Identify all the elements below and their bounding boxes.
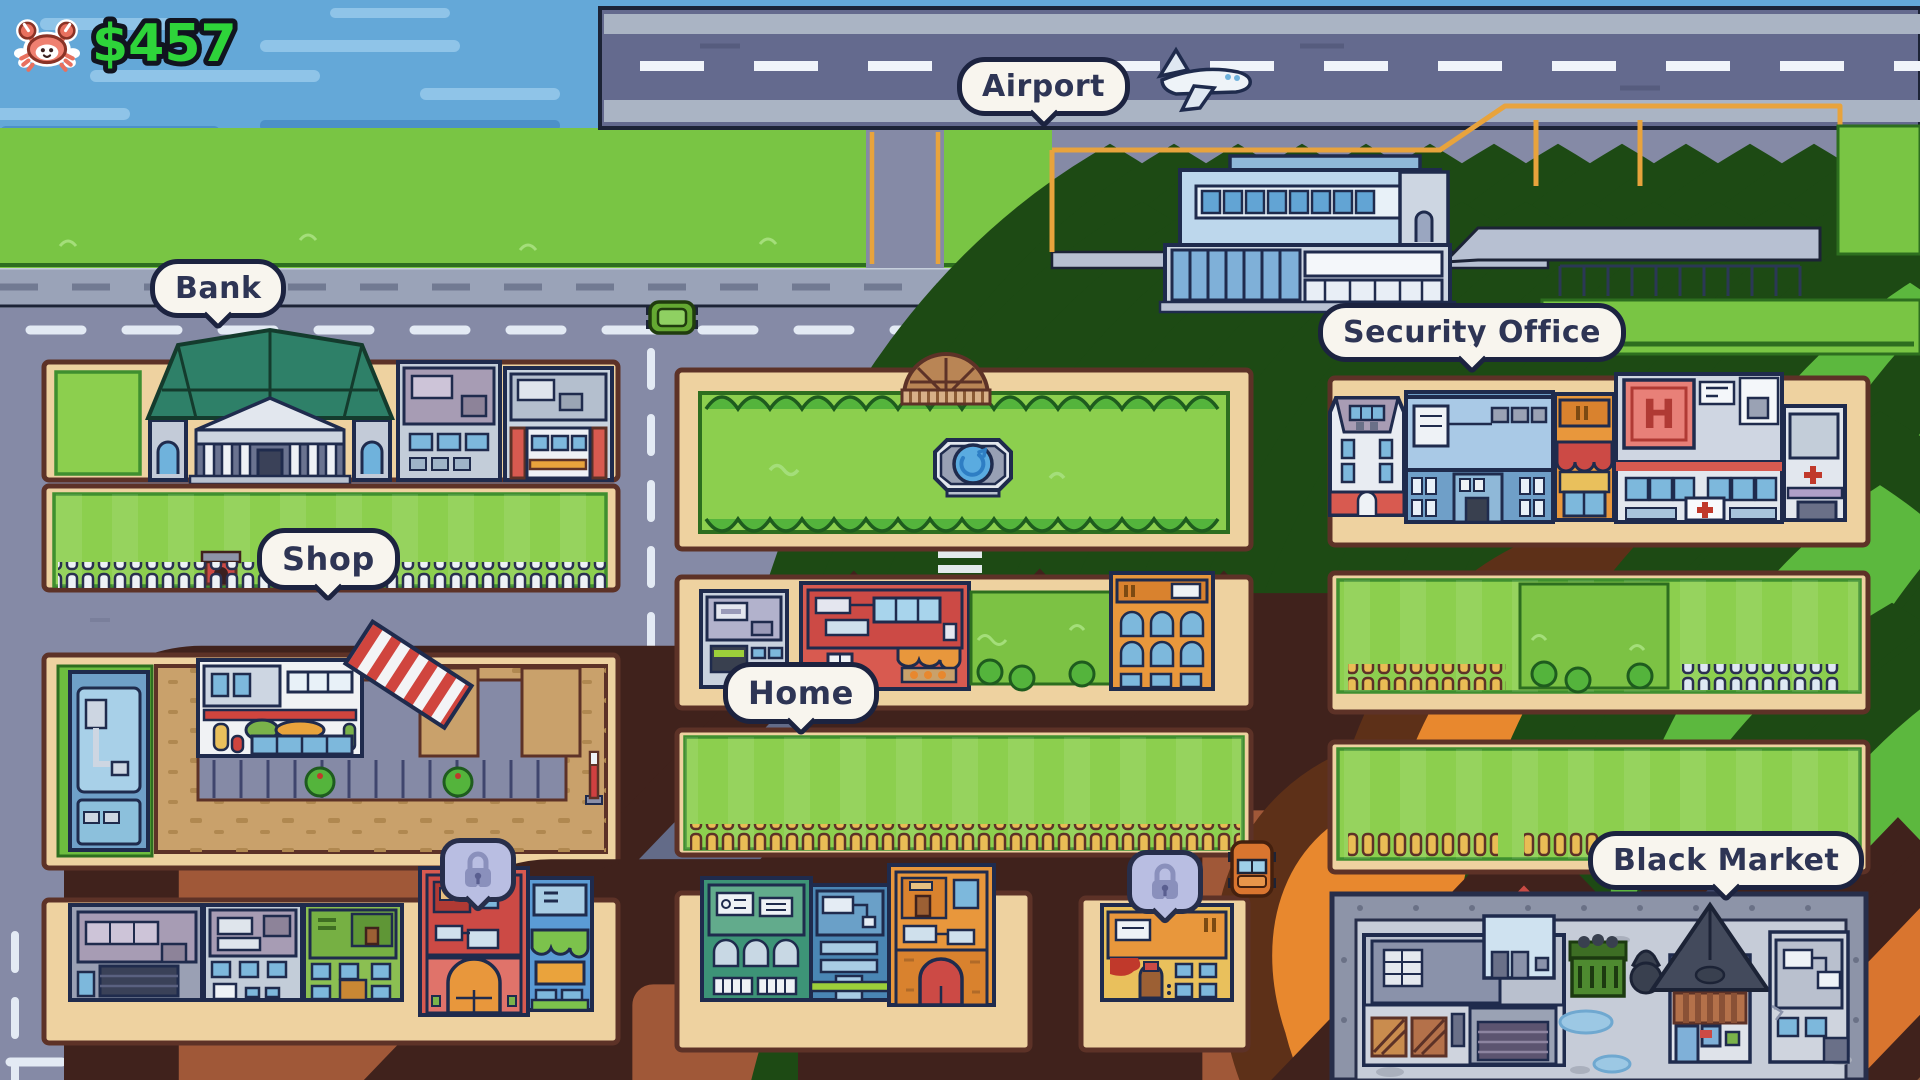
black-market-block — [1332, 894, 1866, 1080]
label-airport[interactable]: Airport — [957, 57, 1130, 116]
label-bank[interactable]: Bank — [150, 259, 286, 318]
pool-area — [58, 666, 152, 856]
orange-cafe-building — [1555, 394, 1614, 520]
hospital-building: H — [1616, 374, 1782, 522]
blue-shop-building — [528, 878, 592, 1010]
label-text: Bank — [175, 271, 261, 306]
label-text: Home — [748, 674, 854, 712]
money-text: $457 — [88, 10, 298, 76]
picket-fence — [690, 824, 1240, 850]
label-text: Shop — [282, 540, 375, 578]
teal-building — [702, 878, 811, 1000]
gray-building — [1770, 932, 1848, 1062]
downtown-block — [677, 865, 1030, 1050]
game-map-screen: H — [0, 0, 1920, 1080]
label-security-office[interactable]: Security Office — [1318, 303, 1626, 362]
blue-building — [811, 885, 889, 1000]
airport-access-path — [866, 128, 944, 268]
svg-text:$457: $457 — [92, 14, 237, 74]
bank-building[interactable] — [148, 330, 392, 484]
storefront-building — [505, 368, 612, 480]
airport-terminal[interactable] — [1160, 156, 1455, 312]
green-car — [646, 302, 698, 333]
label-shop[interactable]: Shop — [257, 528, 400, 590]
green-building — [304, 905, 402, 1000]
clinic-building — [1784, 406, 1845, 520]
hex-tower-building — [1330, 398, 1404, 515]
lock-indicator-shop-parking[interactable] — [440, 838, 516, 902]
crab-icon — [14, 13, 80, 73]
label-text: Airport — [982, 69, 1105, 104]
office-building — [398, 362, 500, 480]
office-building — [204, 905, 302, 1000]
label-text: Security Office — [1343, 315, 1601, 350]
security-office-building[interactable] — [1406, 392, 1553, 522]
money-display: $457 — [14, 10, 298, 76]
orange-tower-building — [889, 865, 994, 1005]
warehouse-building — [1364, 916, 1564, 1065]
runway — [600, 8, 1920, 128]
orange-car — [1228, 842, 1276, 896]
picket-fence — [1348, 832, 1498, 857]
orange-apartment-building — [1111, 573, 1213, 689]
label-text: Black Market — [1613, 843, 1839, 878]
dumpster — [1570, 934, 1626, 996]
lock-icon — [462, 851, 494, 889]
label-home[interactable]: Home — [723, 662, 879, 724]
park-fountain — [935, 440, 1011, 496]
label-black-market[interactable]: Black Market — [1588, 831, 1864, 890]
lock-icon — [1149, 863, 1181, 901]
picket-fence — [1348, 664, 1506, 690]
lock-indicator-downtown-lot[interactable] — [1127, 850, 1203, 914]
security-office-block: H — [1330, 374, 1868, 545]
hospital-helipad-sign: H — [1642, 392, 1675, 438]
warehouse-building — [70, 905, 202, 1000]
picket-fence — [1682, 664, 1840, 690]
